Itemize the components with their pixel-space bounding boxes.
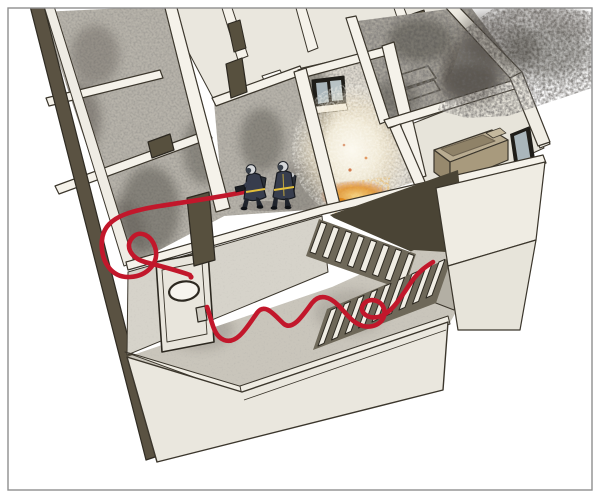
illustration-canvas: [0, 0, 600, 498]
scba-mask: [246, 168, 251, 173]
boot: [271, 206, 278, 210]
scba-mask: [278, 165, 284, 171]
boot: [241, 207, 248, 211]
boot: [257, 205, 264, 209]
boot: [285, 206, 292, 210]
cutaway-illustration: [0, 0, 600, 498]
